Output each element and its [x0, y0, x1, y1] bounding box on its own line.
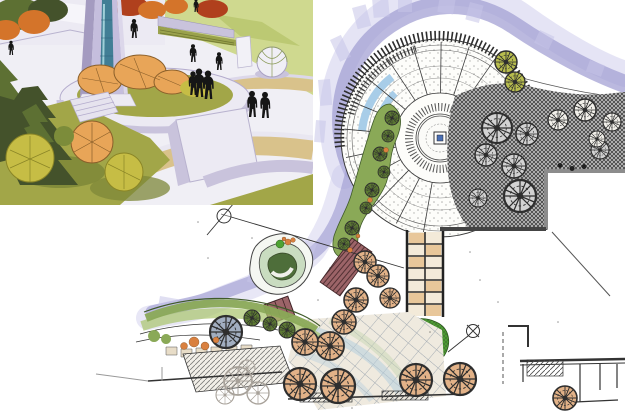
orange-accent — [282, 237, 286, 241]
tree-symbol-tan — [321, 369, 355, 403]
orange-accent — [384, 148, 389, 153]
tree-symbol-ink — [603, 113, 621, 131]
tree-symbol-mass — [502, 154, 526, 178]
tree-symbol-pencil — [216, 386, 234, 404]
orange-accent — [181, 343, 188, 350]
tree-symbol-tan — [380, 288, 400, 308]
tree-symbol-band — [378, 166, 390, 178]
ink-speck — [351, 407, 353, 409]
tree-symbol-tan — [553, 386, 577, 410]
tree-symbol-bluegray — [210, 316, 242, 348]
tree-symbol-tan — [284, 368, 316, 400]
tree-symbol-mass — [469, 189, 487, 207]
tree-symbol-band — [360, 202, 372, 214]
shrub-small-green — [54, 126, 74, 146]
orange-accent — [201, 342, 209, 350]
tree-symbol-band — [244, 310, 260, 326]
orange-accent — [356, 234, 360, 238]
wash-dab — [398, 0, 412, 12]
orange-accent — [189, 337, 199, 347]
ink-speck — [469, 251, 471, 253]
left-band-shrubs — [148, 330, 171, 344]
tree-symbol-ink — [548, 110, 568, 130]
wash-dab — [372, 0, 390, 18]
monument-marker-plan — [437, 135, 443, 141]
tree-symbol-tan — [292, 329, 318, 355]
perspective-rendering — [0, 0, 313, 205]
tree-symbol-ink — [574, 99, 596, 121]
backdrop-autumn-tree — [18, 10, 50, 34]
tree-symbol-mass — [482, 113, 512, 143]
tree-symbol-pencil — [247, 382, 269, 404]
tree-symbol-band — [365, 183, 379, 197]
orange-accent — [368, 198, 373, 203]
tree-symbol-band — [279, 322, 295, 338]
building-footprint — [549, 172, 625, 229]
tree-symbol-olive — [495, 51, 517, 73]
ink-speck — [479, 279, 481, 281]
tree-symbol-band — [345, 221, 359, 235]
tree-symbol-mass — [475, 144, 497, 166]
tree-symbol-tan — [444, 363, 476, 395]
survey-symbol-right — [448, 325, 480, 353]
artwork-canvas — [0, 0, 625, 420]
ink-speck — [317, 299, 319, 301]
ink-speck — [197, 221, 199, 223]
tree-symbol-tan — [367, 265, 389, 287]
tree-symbol-tan — [332, 310, 356, 334]
diagonal-leader-right — [552, 232, 610, 296]
road-edge-faint — [96, 367, 162, 381]
ink-speck — [429, 331, 431, 333]
tree-symbol-ink — [589, 131, 605, 147]
tree-symbol-pencil — [239, 360, 255, 376]
tree-symbol-band — [382, 130, 394, 142]
ink-speck — [497, 301, 499, 303]
ink-speck — [207, 257, 209, 259]
island-tuft — [276, 240, 284, 248]
tree-symbol-band — [263, 317, 277, 331]
orange-accent — [348, 248, 353, 253]
tree-symbol-band — [385, 111, 399, 125]
ink-speck — [557, 321, 559, 323]
tree-symbol-tan — [344, 288, 368, 312]
tree-symbol-mass — [516, 123, 538, 145]
tree-symbol-tan — [316, 332, 344, 360]
stele — [236, 36, 252, 68]
tree-symbol-tan — [400, 364, 432, 396]
tree-symbol-mass — [504, 180, 536, 212]
landscape-design-board — [0, 0, 625, 420]
l-wall — [508, 326, 528, 347]
ink-speck — [251, 237, 253, 239]
orange-accent — [291, 238, 296, 243]
wash-dab — [314, 120, 326, 143]
far-autumn-red — [196, 0, 228, 18]
slab-path-band — [407, 230, 443, 317]
wash-dab — [318, 79, 332, 106]
ink-speck — [329, 267, 331, 269]
tree-symbol-olive — [505, 72, 525, 92]
backdrop-autumn-orange3 — [138, 1, 166, 19]
backdrop-walls-trees — [0, 0, 166, 45]
survey-symbol-left — [207, 203, 234, 235]
orange-accent — [213, 337, 219, 343]
crossing-strip — [183, 346, 294, 392]
